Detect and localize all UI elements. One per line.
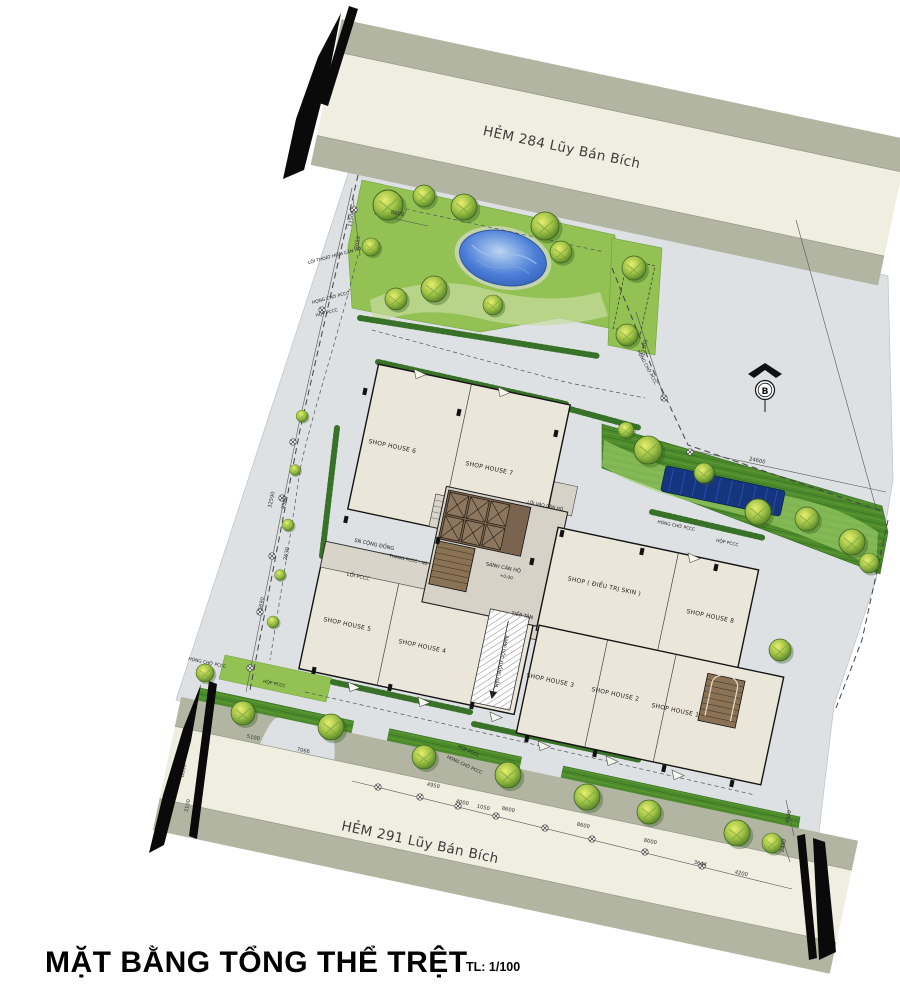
site-plan-page: HẺM 284 Lũy Bán Bích HẺM 291 Lũy Bán Bíc… — [0, 0, 900, 996]
plan-title: MẶT BẰNG TỔNG THỂ TRỆT — [45, 945, 468, 979]
scale-label: TL: 1/100 — [466, 960, 520, 974]
title-block: MẶT BẰNG TỔNG THỂ TRỆT TL: 1/100 — [45, 945, 520, 979]
north-letter: B — [762, 387, 769, 397]
site-plan-canvas: HẺM 284 Lũy Bán Bích HẺM 291 Lũy Bán Bíc… — [0, 0, 900, 996]
